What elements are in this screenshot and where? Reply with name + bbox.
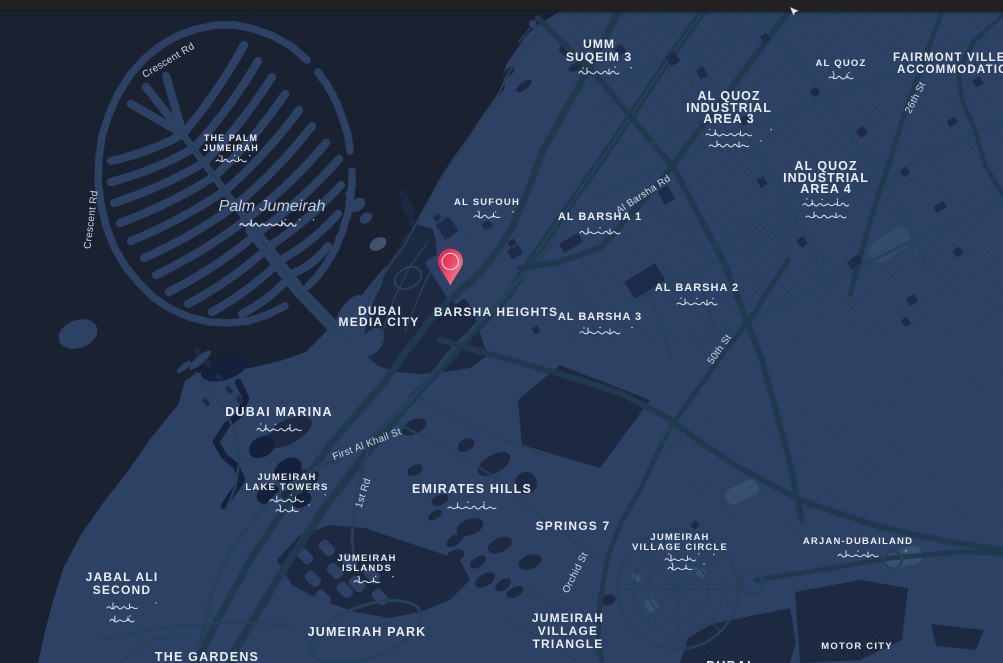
svg-text:SPRINGS 7: SPRINGS 7 — [536, 519, 611, 533]
svg-text:Palm Jumeirah: Palm Jumeirah — [219, 198, 326, 215]
svg-text:AREA 4: AREA 4 — [800, 182, 851, 196]
svg-text:AL BARSHA 1: AL BARSHA 1 — [558, 211, 642, 223]
svg-text:SECOND: SECOND — [93, 583, 152, 597]
svg-text:AL BARSHA 3: AL BARSHA 3 — [558, 311, 642, 323]
svg-text:JABAL ALI: JABAL ALI — [86, 570, 159, 584]
svg-text:VILLAGE CIRCLE: VILLAGE CIRCLE — [632, 542, 728, 553]
svg-text:JUMEIRAH: JUMEIRAH — [203, 143, 259, 153]
svg-text:ARJAN-DUBAILAND: ARJAN-DUBAILAND — [803, 536, 913, 547]
svg-text:AL BARSHA 2: AL BARSHA 2 — [655, 282, 739, 294]
svg-text:THE GARDENS: THE GARDENS — [155, 650, 259, 663]
svg-text:JUMEIRAH: JUMEIRAH — [532, 611, 604, 625]
svg-text:DUBAI MARINA: DUBAI MARINA — [225, 405, 332, 419]
svg-text:MEDIA CITY: MEDIA CITY — [339, 315, 420, 329]
svg-text:AL SUFOUH: AL SUFOUH — [454, 197, 520, 208]
svg-text:ACCOMMODATIO: ACCOMMODATIO — [897, 64, 1003, 76]
svg-text:LAKE TOWERS: LAKE TOWERS — [245, 482, 328, 493]
svg-text:UMM: UMM — [583, 37, 615, 51]
svg-text:SUQEIM 3: SUQEIM 3 — [566, 50, 632, 64]
svg-text:DUBAI: DUBAI — [706, 659, 752, 663]
svg-text:BARSHA HEIGHTS: BARSHA HEIGHTS — [434, 305, 558, 319]
svg-text:TRIANGLE: TRIANGLE — [533, 637, 604, 651]
svg-text:AREA 3: AREA 3 — [703, 112, 754, 126]
svg-text:ISLANDS: ISLANDS — [342, 563, 392, 574]
svg-text:AL QUOZ: AL QUOZ — [816, 58, 867, 69]
svg-text:THE PALM: THE PALM — [204, 133, 258, 143]
svg-text:JUMEIRAH PARK: JUMEIRAH PARK — [308, 625, 427, 639]
svg-text:FAIRMONT VILLE: FAIRMONT VILLE — [893, 52, 1003, 64]
svg-text:EMIRATES HILLS: EMIRATES HILLS — [412, 482, 532, 496]
svg-text:VILLAGE: VILLAGE — [538, 624, 598, 638]
svg-text:MOTOR CITY: MOTOR CITY — [821, 641, 892, 652]
